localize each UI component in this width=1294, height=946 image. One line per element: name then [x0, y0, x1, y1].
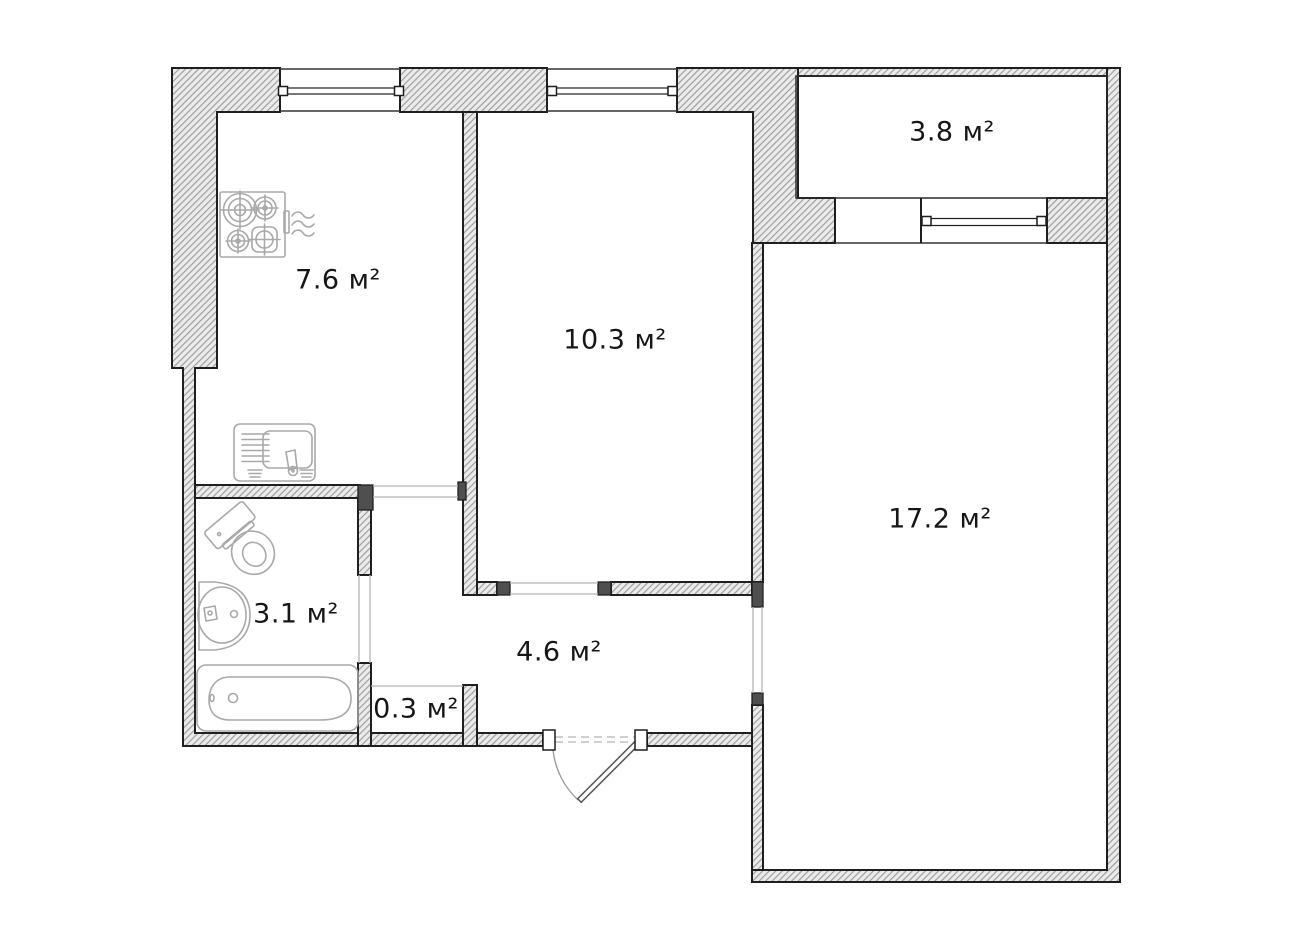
wall-bathroom-top	[195, 485, 360, 498]
window-balcony-icon	[921, 198, 1046, 243]
window-room-medium-icon	[547, 69, 677, 111]
wall-room-medium-bottom-left	[477, 582, 497, 595]
wall-balcony-top	[798, 68, 1107, 76]
jamb-room-medium-door-left	[497, 582, 510, 595]
jamb-large-room-door-top	[752, 582, 763, 607]
room-label-room-medium: 10.3 м²	[563, 325, 666, 356]
wall-top-right-corner	[677, 68, 835, 243]
stove-icon	[220, 191, 314, 257]
wall-large-room-left-upper	[752, 243, 763, 582]
floor-plan-drawing	[0, 0, 1294, 946]
toilet-icon	[204, 501, 287, 586]
room-label-balcony: 3.8 м²	[909, 117, 995, 148]
window-kitchen-icon	[279, 69, 404, 111]
jamb-large-room-door-bottom	[752, 693, 763, 705]
wall-large-room-left-lower	[752, 705, 763, 870]
wall-bathroom-right-lower	[358, 663, 371, 746]
room-label-room-large: 17.2 м²	[888, 504, 991, 535]
jamb-kitchen-door-left	[358, 485, 373, 510]
entrance-jamb-left	[543, 730, 555, 750]
wall-balcony-pier-right	[1047, 198, 1107, 243]
jamb-room-medium-door-right	[598, 582, 611, 595]
floor-plan-canvas: 7.6 м² 10.3 м² 3.8 м² 17.2 м² 3.1 м² 4.6…	[0, 0, 1294, 946]
entrance-door-icon	[543, 730, 647, 802]
room-label-kitchen: 7.6 м²	[295, 265, 381, 296]
entrance-jamb-right	[635, 730, 647, 750]
room-label-hallway: 4.6 м²	[516, 637, 602, 668]
kitchen-sink-icon	[234, 424, 315, 481]
wall-closet-right	[463, 685, 477, 746]
wall-right-outer	[752, 68, 1120, 882]
bathtub-icon	[197, 665, 358, 731]
room-label-bathroom: 3.1 м²	[253, 599, 339, 630]
washbasin-icon	[198, 582, 250, 650]
wall-bottom-right-of-door	[647, 733, 752, 746]
wall-kitchen-partition	[463, 112, 477, 595]
wall-room-medium-bottom-right	[611, 582, 752, 595]
wall-left-outer	[172, 68, 543, 746]
jamb-kitchen-door-right	[458, 482, 466, 500]
room-label-closet: 0.3 м²	[373, 694, 459, 725]
wall-top-middle	[400, 68, 547, 112]
